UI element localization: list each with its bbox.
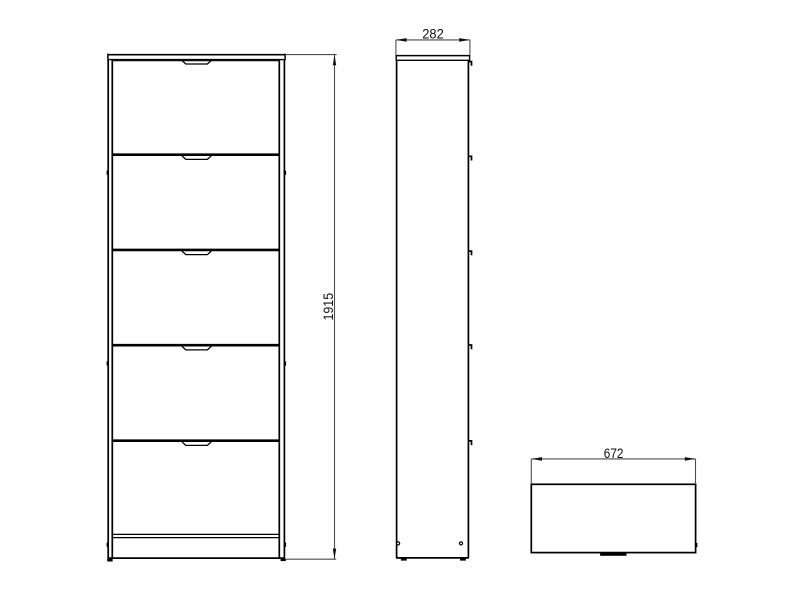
svg-text:1915: 1915 (320, 293, 336, 321)
svg-text:282: 282 (422, 26, 444, 42)
svg-text:672: 672 (604, 445, 624, 461)
